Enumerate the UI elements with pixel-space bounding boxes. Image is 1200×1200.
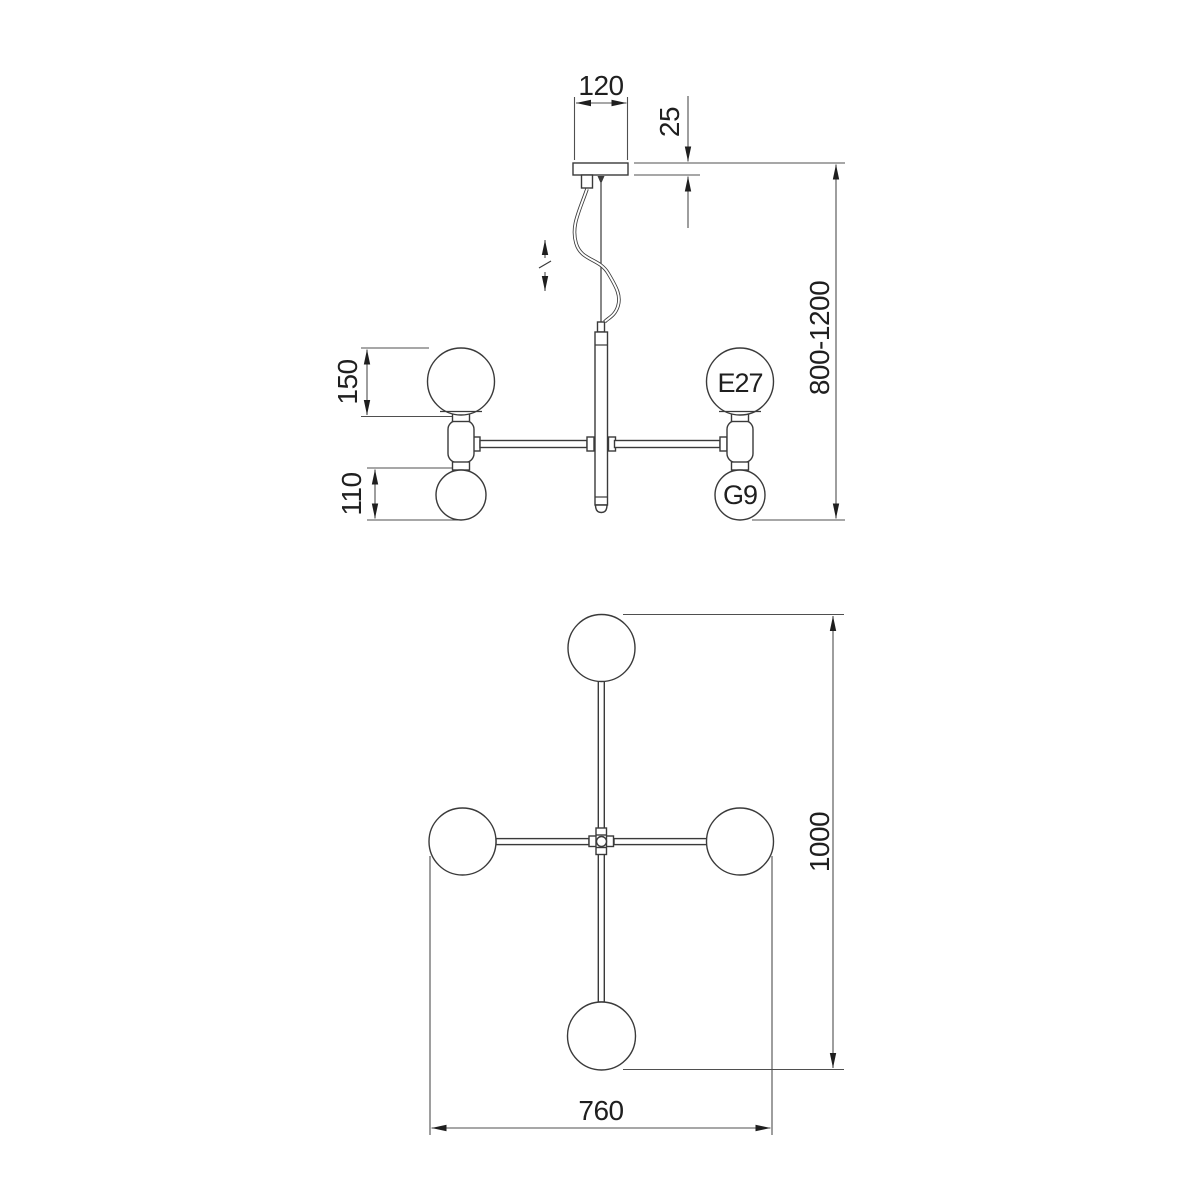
arm-bracket (587, 437, 594, 451)
break-slash (539, 261, 551, 268)
central-hub (597, 837, 607, 847)
holder-neck-bottom-right (732, 462, 749, 470)
hub-bracket (607, 836, 614, 847)
dim-small-globe-label: 110 (336, 472, 367, 515)
plan-globe-left (429, 808, 496, 875)
column-end-cap (596, 505, 608, 513)
central-column (595, 332, 608, 505)
arm-bracket (720, 437, 727, 451)
socket-label-g9: G9 (723, 480, 757, 510)
hub-bracket (596, 848, 607, 855)
elevation-view: 120 25 800-1200 150 110 (332, 70, 845, 520)
dim-plan-width-label: 760 (578, 1095, 623, 1126)
drawing-canvas: 120 25 800-1200 150 110 (0, 0, 1200, 1200)
dim-canopy-width-label: 120 (578, 70, 623, 101)
plan-view: 1000 760 (429, 615, 844, 1136)
plan-globe-right (707, 808, 774, 875)
cable-gland (582, 175, 593, 188)
plan-arm-right (614, 839, 707, 845)
wire-attachment (598, 176, 605, 184)
technical-drawing: 120 25 800-1200 150 110 (0, 0, 1200, 1200)
hub-bracket (596, 828, 607, 835)
dim-hanging-height-label: 800-1200 (804, 281, 835, 395)
dim-plan-depth-label: 1000 (804, 812, 835, 872)
dim-large-globe-label: 150 (332, 359, 363, 404)
small-globe-left (436, 470, 486, 520)
plan-globe-bottom (568, 1002, 636, 1070)
holder-neck-bottom-left (453, 462, 470, 470)
arm-right (615, 441, 721, 448)
plan-arm-top (598, 681, 604, 829)
socket-label-e27: E27 (717, 368, 762, 398)
wire-ferrule (598, 322, 605, 332)
large-globe-left (428, 348, 495, 415)
ceiling-canopy (573, 163, 628, 175)
holder-body-left (448, 421, 474, 463)
plan-arm-bottom (598, 854, 604, 1002)
holder-body-right (727, 421, 753, 463)
plan-arm-left (496, 839, 589, 845)
dim-canopy-width: 120 (575, 70, 628, 160)
power-cable (574, 189, 619, 322)
dim-canopy-thickness: 25 (634, 96, 700, 228)
height-adjust-icon (539, 240, 551, 291)
hub-bracket (589, 836, 596, 847)
dim-canopy-thickness-label: 25 (654, 107, 685, 137)
plan-globe-top (568, 615, 635, 682)
arm-left (480, 441, 587, 448)
